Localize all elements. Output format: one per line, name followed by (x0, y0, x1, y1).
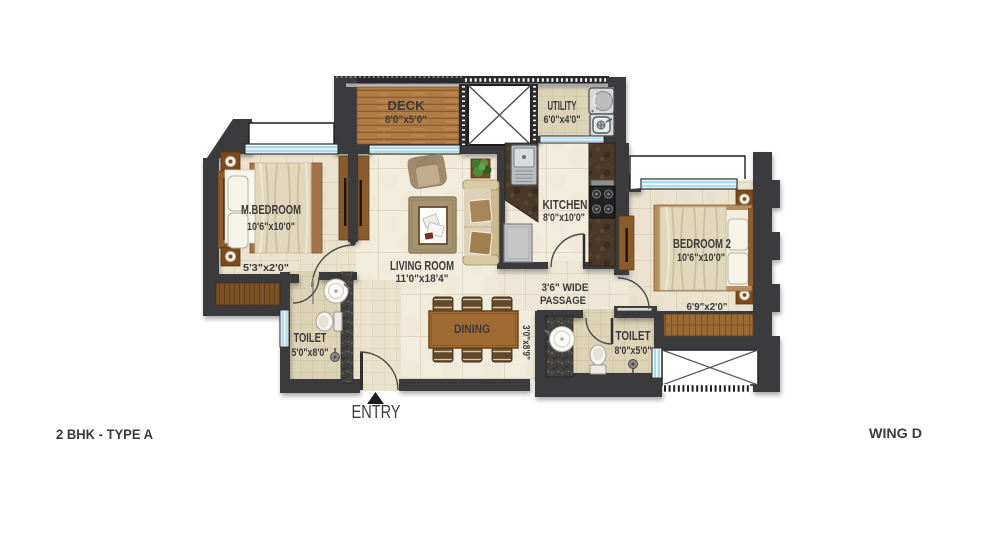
svg-text:3'0"x8'9": 3'0"x8'9" (520, 325, 532, 360)
svg-text:BEDROOM 2: BEDROOM 2 (673, 236, 731, 251)
svg-text:10'6"x10'0": 10'6"x10'0" (677, 252, 725, 264)
svg-text:2 BHK - TYPE A: 2 BHK - TYPE A (56, 426, 153, 442)
svg-text:DINING: DINING (454, 322, 490, 336)
svg-text:ENTRY: ENTRY (352, 402, 401, 422)
svg-text:3'6" WIDE: 3'6" WIDE (542, 282, 589, 294)
svg-text:TOILET: TOILET (294, 330, 327, 345)
svg-text:6'9"x2'0": 6'9"x2'0" (687, 301, 728, 313)
svg-text:6'0"x4'0": 6'0"x4'0" (544, 114, 581, 126)
svg-text:PASSAGE: PASSAGE (540, 295, 586, 307)
svg-text:8'0"x5'0": 8'0"x5'0" (385, 114, 427, 126)
svg-text:10'6"x10'0": 10'6"x10'0" (247, 221, 295, 233)
svg-text:DECK: DECK (388, 98, 426, 113)
svg-text:8'0"x5'0": 8'0"x5'0" (615, 345, 652, 357)
svg-text:5'3"x2'0": 5'3"x2'0" (243, 262, 289, 274)
svg-text:LIVING ROOM: LIVING ROOM (390, 258, 454, 273)
svg-text:UTILITY: UTILITY (548, 98, 577, 113)
svg-text:TOILET: TOILET (616, 328, 651, 343)
svg-text:8'0"x10'0": 8'0"x10'0" (543, 212, 585, 224)
svg-text:KITCHEN: KITCHEN (543, 197, 588, 212)
svg-text:WING D: WING D (869, 425, 922, 441)
svg-text:11'0"x18'4": 11'0"x18'4" (396, 273, 449, 285)
svg-text:M.BEDROOM: M.BEDROOM (241, 202, 301, 217)
svg-text:5'0"x8'0": 5'0"x8'0" (292, 347, 329, 359)
